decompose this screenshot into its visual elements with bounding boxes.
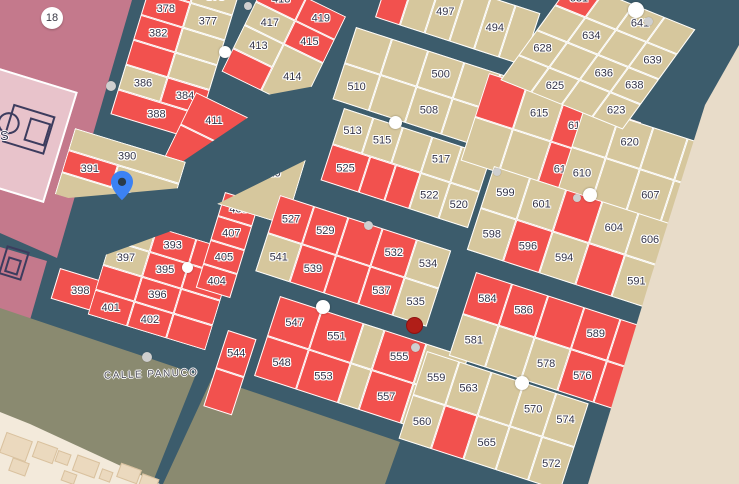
parcel-number-label: 631	[570, 0, 588, 5]
parcel-number-label: 414	[283, 71, 301, 83]
parcel-number-label: 576	[573, 370, 591, 382]
parcel-number-label: 638	[625, 80, 643, 92]
parcel-number-label: 606	[641, 234, 659, 246]
parcel-number-label: 584	[478, 293, 496, 305]
parcel-number-label: 598	[482, 229, 500, 241]
road-junction-dot	[106, 81, 116, 91]
parcel-number-label: 384	[176, 90, 194, 102]
parcel-number-label: 392	[102, 202, 120, 214]
road-junction-dot	[219, 46, 231, 58]
partial-place-label: S	[0, 128, 9, 143]
area-number-badge[interactable]: 18	[41, 7, 63, 29]
parcel-number-label: 572	[542, 458, 560, 470]
road-junction-dot	[316, 300, 330, 314]
parcel-number-label: 527	[282, 214, 300, 226]
road-junction-dot	[364, 221, 373, 230]
parcel-number-label: 520	[450, 199, 468, 211]
parcel-number-label: 390	[118, 150, 136, 162]
parcel-number-label: 553	[314, 370, 332, 382]
parcel-number-label: 551	[327, 330, 345, 342]
location-pin-marker[interactable]	[111, 170, 133, 201]
parcel-number-label: 396	[149, 289, 167, 301]
road-junction-dot	[244, 2, 252, 10]
parcel-number-label: 596	[519, 240, 537, 252]
parcel-number-label: 377	[199, 16, 217, 28]
parcel-number-label: 402	[141, 314, 159, 326]
parcel-number-label: 418	[272, 0, 290, 5]
parcel-number-label: 494	[486, 21, 504, 33]
parcel-number-label: 628	[534, 43, 552, 55]
parcel-block: 418419417415413414	[221, 0, 346, 110]
parcel-number-label: 532	[384, 247, 402, 259]
parcel-number-label: 407	[222, 227, 240, 239]
road-junction-dot	[573, 194, 581, 202]
parcel-number-label: 534	[419, 258, 437, 270]
parcel-number-label: 535	[406, 296, 424, 308]
parcel-number-label: 589	[587, 328, 605, 340]
parcel-number-label: 513	[344, 125, 362, 137]
parcel-number-label: 529	[316, 225, 334, 237]
parcel-number-label: 508	[420, 105, 438, 117]
parcel-number-label: 537	[372, 285, 390, 297]
parcel-number-label: 415	[300, 36, 318, 48]
parcel-number-label: 591	[627, 276, 645, 288]
road-junction-dot	[142, 352, 152, 362]
parcel-number-label: 623	[607, 105, 625, 117]
parcel-number-label: 398	[71, 285, 89, 297]
parcel-number-label: 615	[530, 107, 548, 119]
parcel-number-label: 634	[582, 30, 600, 42]
parcel-number-label: 639	[644, 55, 662, 67]
parcel-number-label: 386	[134, 77, 152, 89]
map-canvas[interactable]: 18 S CALLE PANUCO 3763783773823863843884…	[0, 0, 739, 484]
parcel-number-label: 599	[496, 187, 514, 199]
road-junction-dot	[411, 343, 420, 352]
parcel-number-label: 581	[464, 335, 482, 347]
parcel-number-label: 539	[304, 263, 322, 275]
parcel-number-label: 563	[459, 383, 477, 395]
parcel-number-label: 541	[269, 252, 287, 264]
parcel-number-label: 419	[311, 13, 329, 25]
parcel-number-label: 515	[373, 134, 391, 146]
parcel-number-label: 565	[477, 437, 495, 449]
parcel-number-label: 378	[156, 3, 174, 15]
parcel-number-label: 405	[215, 251, 233, 263]
road-junction-dot	[493, 168, 501, 176]
parcel-number-label: 411	[205, 115, 223, 127]
parcel-number-label: 557	[377, 391, 395, 403]
road-junction-dot	[583, 188, 597, 202]
parcel-number-label: 544	[227, 348, 245, 360]
road-junction-dot	[515, 376, 529, 390]
road-junction-dot	[628, 2, 644, 18]
parcel-number-label: 517	[432, 154, 450, 166]
parcel-number-label: 548	[272, 357, 290, 369]
parcel-number-label: 601	[532, 199, 550, 211]
parcel-number-label: 397	[117, 252, 135, 264]
parcel-number-label: 376	[206, 0, 224, 3]
parcel-number-label: 382	[149, 28, 167, 40]
building-footprint	[138, 473, 159, 484]
parcel-number-label: 578	[537, 358, 555, 370]
selected-parcel-dot-marker[interactable]	[406, 317, 423, 334]
parcel-number-label: 510	[347, 81, 365, 93]
parcel-number-label: 395	[156, 264, 174, 276]
parcel-number-label: 547	[285, 317, 303, 329]
parcel-number-label: 388	[147, 109, 165, 121]
parcel-number-label: 522	[420, 190, 438, 202]
parcel-number-label: 559	[427, 372, 445, 384]
road-junction-dot	[389, 116, 402, 129]
parcel-number-label: 594	[555, 252, 573, 264]
parcel-number-label: 586	[514, 305, 532, 317]
parcel-number-label: 574	[556, 414, 574, 426]
parcel-number-label: 492	[387, 0, 405, 1]
parcel-number-label: 500	[431, 68, 449, 80]
road-junction-dot	[182, 262, 193, 273]
parcel-number-label: 417	[260, 17, 278, 29]
parcel-number-label: 555	[390, 351, 408, 363]
parcel-number-label: 410	[262, 168, 280, 180]
parcel-number-label: 401	[102, 302, 120, 314]
parcel-number-label: 393	[164, 239, 182, 251]
parcel-number-label: 604	[605, 222, 623, 234]
road-junction-dot	[644, 17, 653, 26]
parcel-number-label: 404	[207, 275, 225, 287]
parcel-number-label: 625	[546, 80, 564, 92]
parcel-number-label: 610	[573, 167, 591, 179]
parcel-number-label: 620	[620, 137, 638, 149]
parcel-number-label: 607	[641, 190, 659, 202]
parcel-number-label: 525	[336, 162, 354, 174]
parcel-number-label: 636	[595, 67, 613, 79]
parcel-number-label: 391	[81, 163, 99, 175]
parcel-number-label: 570	[524, 404, 542, 416]
parcel-number-label: 413	[249, 40, 267, 52]
parcel-number-label: 497	[436, 5, 454, 17]
parcel-number-label: 560	[413, 416, 431, 428]
